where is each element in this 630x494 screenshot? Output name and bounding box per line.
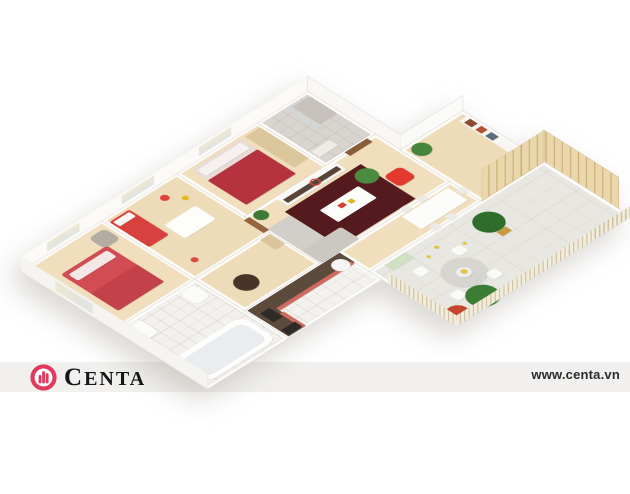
apartment-3d-scene [0,0,630,494]
website-url: www.centa.vn [531,367,620,382]
brand-name: CENTA [64,365,146,390]
building-in-circle-icon [30,364,57,391]
centa-logo: CENTA [30,362,146,392]
floor-plan-image: CENTA www.centa.vn [0,0,630,494]
